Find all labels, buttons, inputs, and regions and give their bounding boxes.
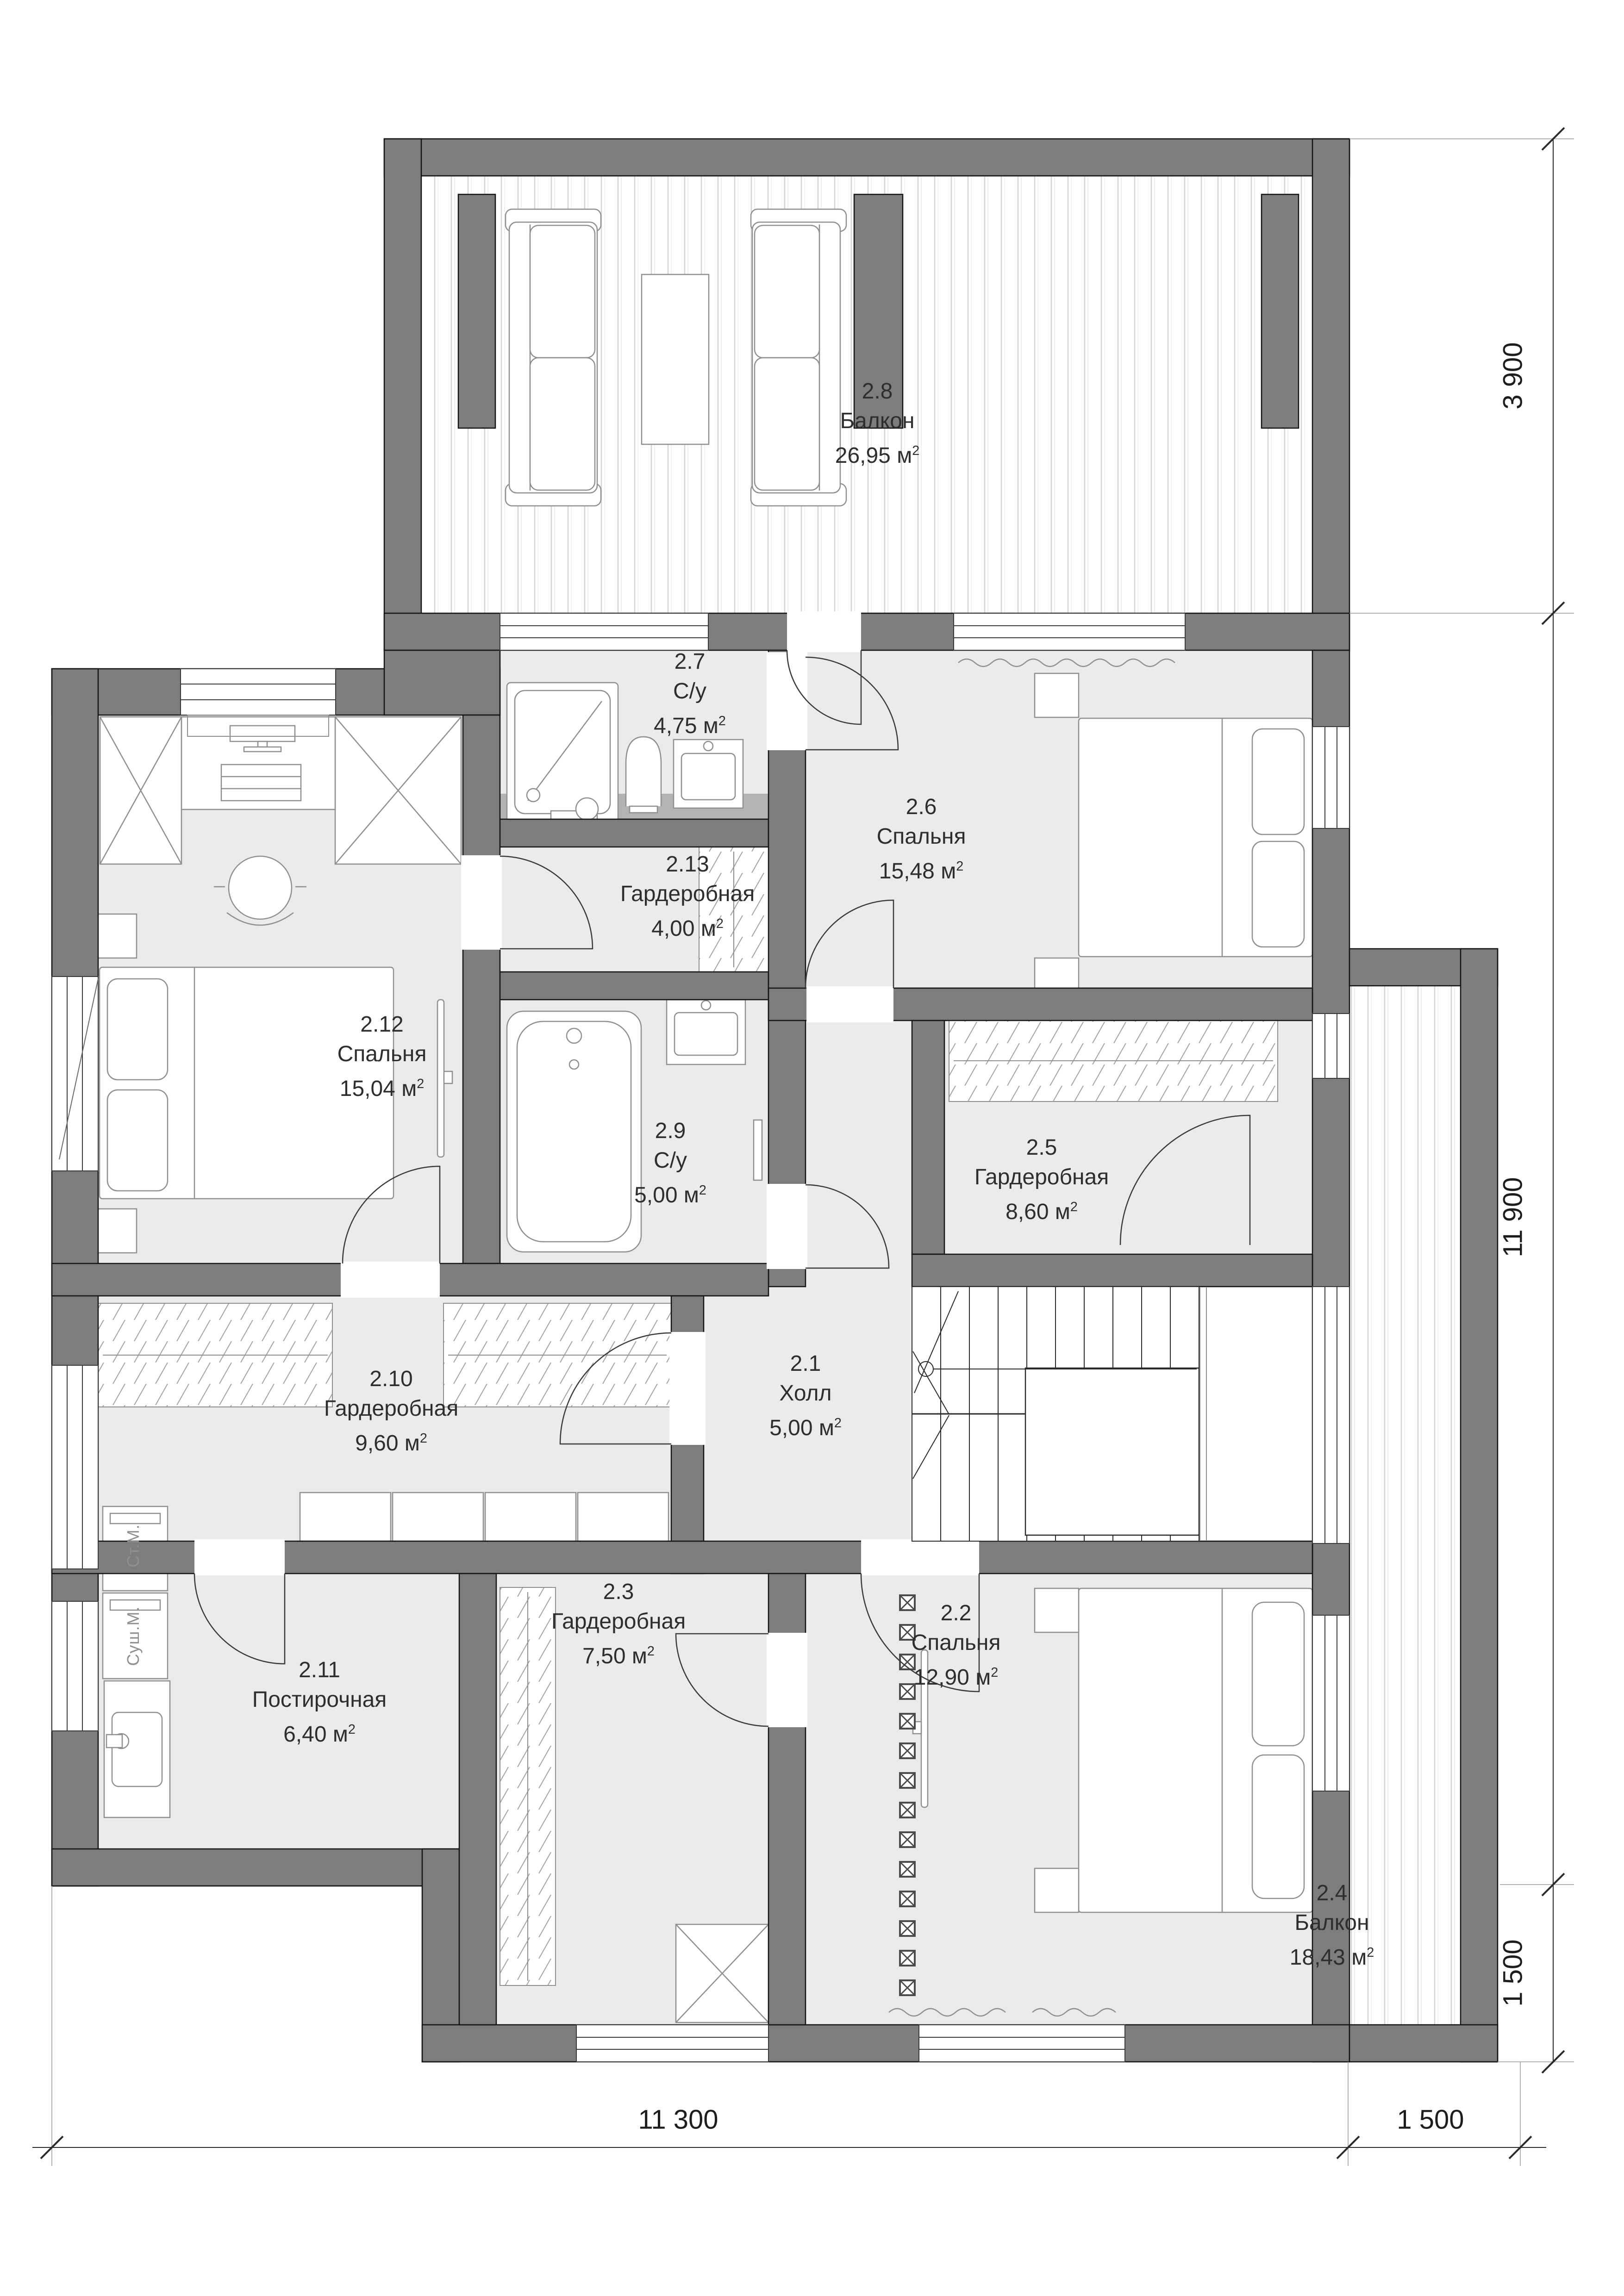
room-label-su-27: 2.7С/у 4,75 м2 [654,647,726,741]
room-label-balkon-24: 2.4Балкон 18,43 м2 [1290,1879,1374,1972]
floor-plan-drawing [0,0,1624,2296]
sink [667,1000,745,1064]
room-label-balkon-28: 2.8Балкон 26,95 м2 [835,377,919,471]
desk [181,717,335,809]
bathtub [507,1011,641,1252]
window [500,613,708,650]
room-label-garderobnaya-213: 2.13Гардеробная 4,00 м2 [620,850,755,944]
sofa [751,209,846,506]
room-label-holl-21: 2.1Холл 5,00 м2 [769,1349,842,1443]
dim-right-11900: 11 900 [1498,1177,1529,1257]
dim-bottom-11300: 11 300 [638,2104,718,2135]
nightstand [93,914,137,958]
window [52,1365,98,1569]
window [954,613,1185,650]
dim-right-1500: 1 500 [1498,1939,1529,2006]
nightstand [1035,1588,1079,1632]
window [52,977,98,1171]
bed [1079,718,1312,957]
shower [507,683,618,828]
window [1312,1615,1349,1791]
floor-plan-page: 2.8Балкон 26,95 м2 2.7С/у 4,75 м2 2.6Спа… [0,0,1624,2296]
laundry-sink [104,1681,170,1817]
bed [1079,1588,1312,1912]
nightstand [1035,673,1079,717]
sofa [506,209,601,506]
window [1312,1287,1349,1543]
nightstand [1035,1868,1079,1912]
staircase [912,1287,1206,1541]
room-label-postirochnaya-211: 2.11Постирочная 6,40 м2 [252,1655,387,1749]
room-label-garderobnaya-25: 2.5Гардеробная 8,60 м2 [974,1133,1109,1227]
sink [674,740,743,808]
window [1312,727,1349,828]
toilet [626,737,661,813]
coffee-table [642,274,709,444]
dryer-label: Суш.М. [124,1606,143,1666]
dim-bottom-1500: 1 500 [1397,2104,1464,2135]
window [52,1601,98,1731]
washing-machine-label: Ст.М. [124,1524,143,1568]
room-label-spalnya-22: 2.2Спальня 12,90 м2 [912,1599,1001,1692]
wardrobe [676,1924,768,2022]
dim-right-3900: 3 900 [1498,342,1529,409]
window [1312,1014,1349,1078]
room-label-garderobnaya-210: 2.10Гардеробная 9,60 м2 [324,1364,458,1458]
towel-rail [754,1120,762,1180]
nightstand [93,1209,137,1253]
room-label-spalnya-26: 2.6Спальня 15,48 м2 [877,792,966,886]
window [576,2025,768,2062]
balcony-floor-side [1349,986,1461,2025]
room-label-spalnya-212: 2.12Спальня 15,04 м2 [337,1010,427,1104]
window [919,2025,1125,2062]
room-label-garderobnaya-23: 2.3Гардеробная 7,50 м2 [551,1577,686,1671]
room-label-su-29: 2.9С/у 5,00 м2 [634,1116,706,1210]
